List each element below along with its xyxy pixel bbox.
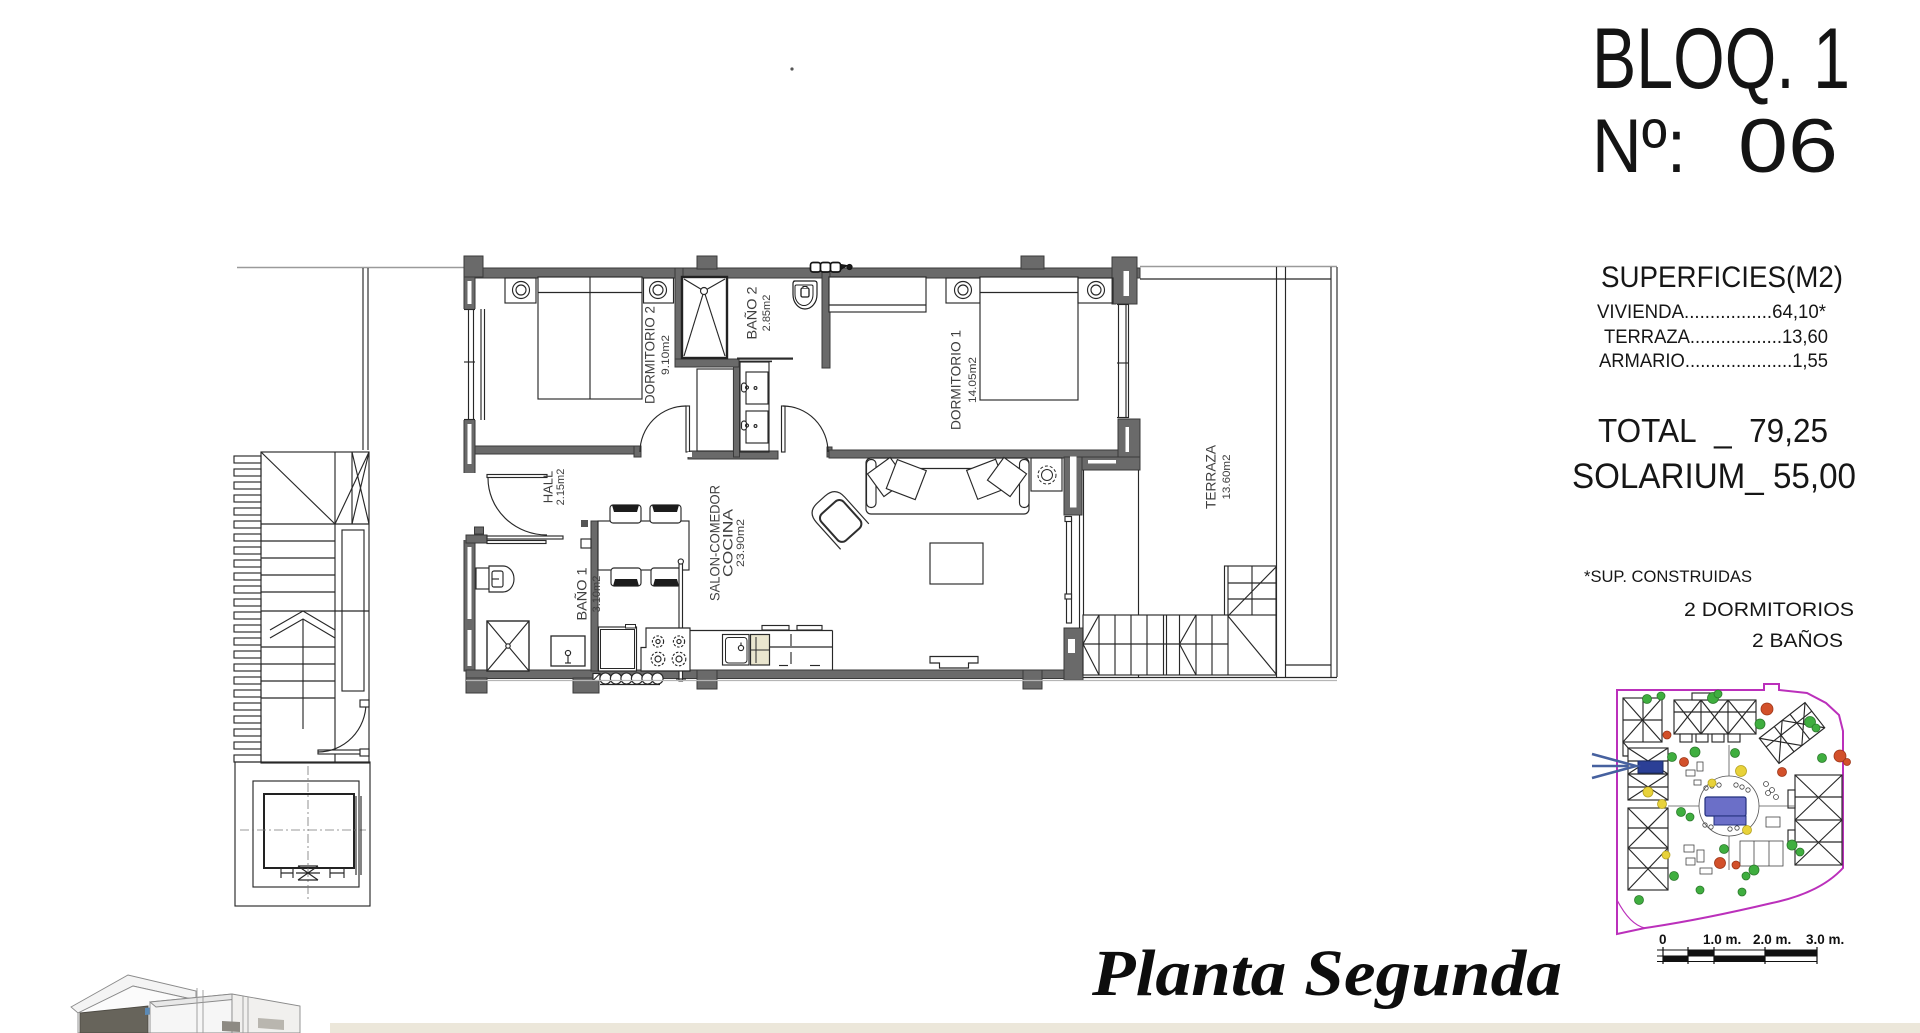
svg-text:14.05m2: 14.05m2 — [967, 357, 979, 403]
svg-text:13.60m2: 13.60m2 — [1221, 455, 1233, 500]
svg-text:SUPERFICIES(M2): SUPERFICIES(M2) — [1601, 261, 1843, 294]
svg-text:TOTAL _ 79,25: TOTAL _ 79,25 — [1598, 412, 1828, 449]
svg-text:ARMARIO.....................1,: ARMARIO.....................1,55 — [1599, 350, 1828, 372]
svg-text:2.0 m.: 2.0 m. — [1753, 932, 1791, 947]
svg-text:DORMITORIO 2: DORMITORIO 2 — [643, 306, 658, 404]
svg-text:*SUP. CONSTRUIDAS: *SUP. CONSTRUIDAS — [1584, 567, 1752, 586]
svg-text:2.15m2: 2.15m2 — [555, 469, 567, 506]
svg-text:3.10m2: 3.10m2 — [591, 576, 603, 613]
svg-text:1.0 m.: 1.0 m. — [1703, 932, 1741, 947]
svg-text:SOLARIUM_ 55,00: SOLARIUM_ 55,00 — [1572, 457, 1856, 496]
svg-text:BLOQ. 1: BLOQ. 1 — [1592, 11, 1850, 107]
svg-text:TERRAZA: TERRAZA — [1204, 445, 1219, 509]
svg-text:3.0 m.: 3.0 m. — [1806, 932, 1844, 947]
svg-text:TERRAZA..................13,60: TERRAZA..................13,60 — [1604, 326, 1828, 348]
svg-text:23.90m2: 23.90m2 — [735, 519, 747, 567]
svg-text:0: 0 — [1659, 932, 1667, 947]
svg-text:DORMITORIO 1: DORMITORIO 1 — [949, 330, 964, 430]
svg-text:2 DORMITORIOS: 2 DORMITORIOS — [1684, 600, 1854, 621]
svg-text:BAÑO 2: BAÑO 2 — [745, 287, 760, 340]
svg-text:HALL: HALL — [540, 471, 555, 504]
svg-text:COCINA: COCINA — [721, 509, 736, 577]
svg-text:VIVIENDA.................64,10: VIVIENDA.................64,10* — [1597, 301, 1826, 323]
svg-text:9.10m2: 9.10m2 — [660, 335, 672, 375]
svg-text:Nº:: Nº: — [1592, 104, 1686, 189]
svg-text:BAÑO 1: BAÑO 1 — [575, 568, 590, 621]
svg-text:Planta Segunda: Planta Segunda — [1091, 937, 1562, 1010]
svg-text:2 BAÑOS: 2 BAÑOS — [1752, 630, 1843, 652]
svg-text:06: 06 — [1738, 104, 1838, 189]
svg-text:2.85m2: 2.85m2 — [761, 295, 773, 332]
